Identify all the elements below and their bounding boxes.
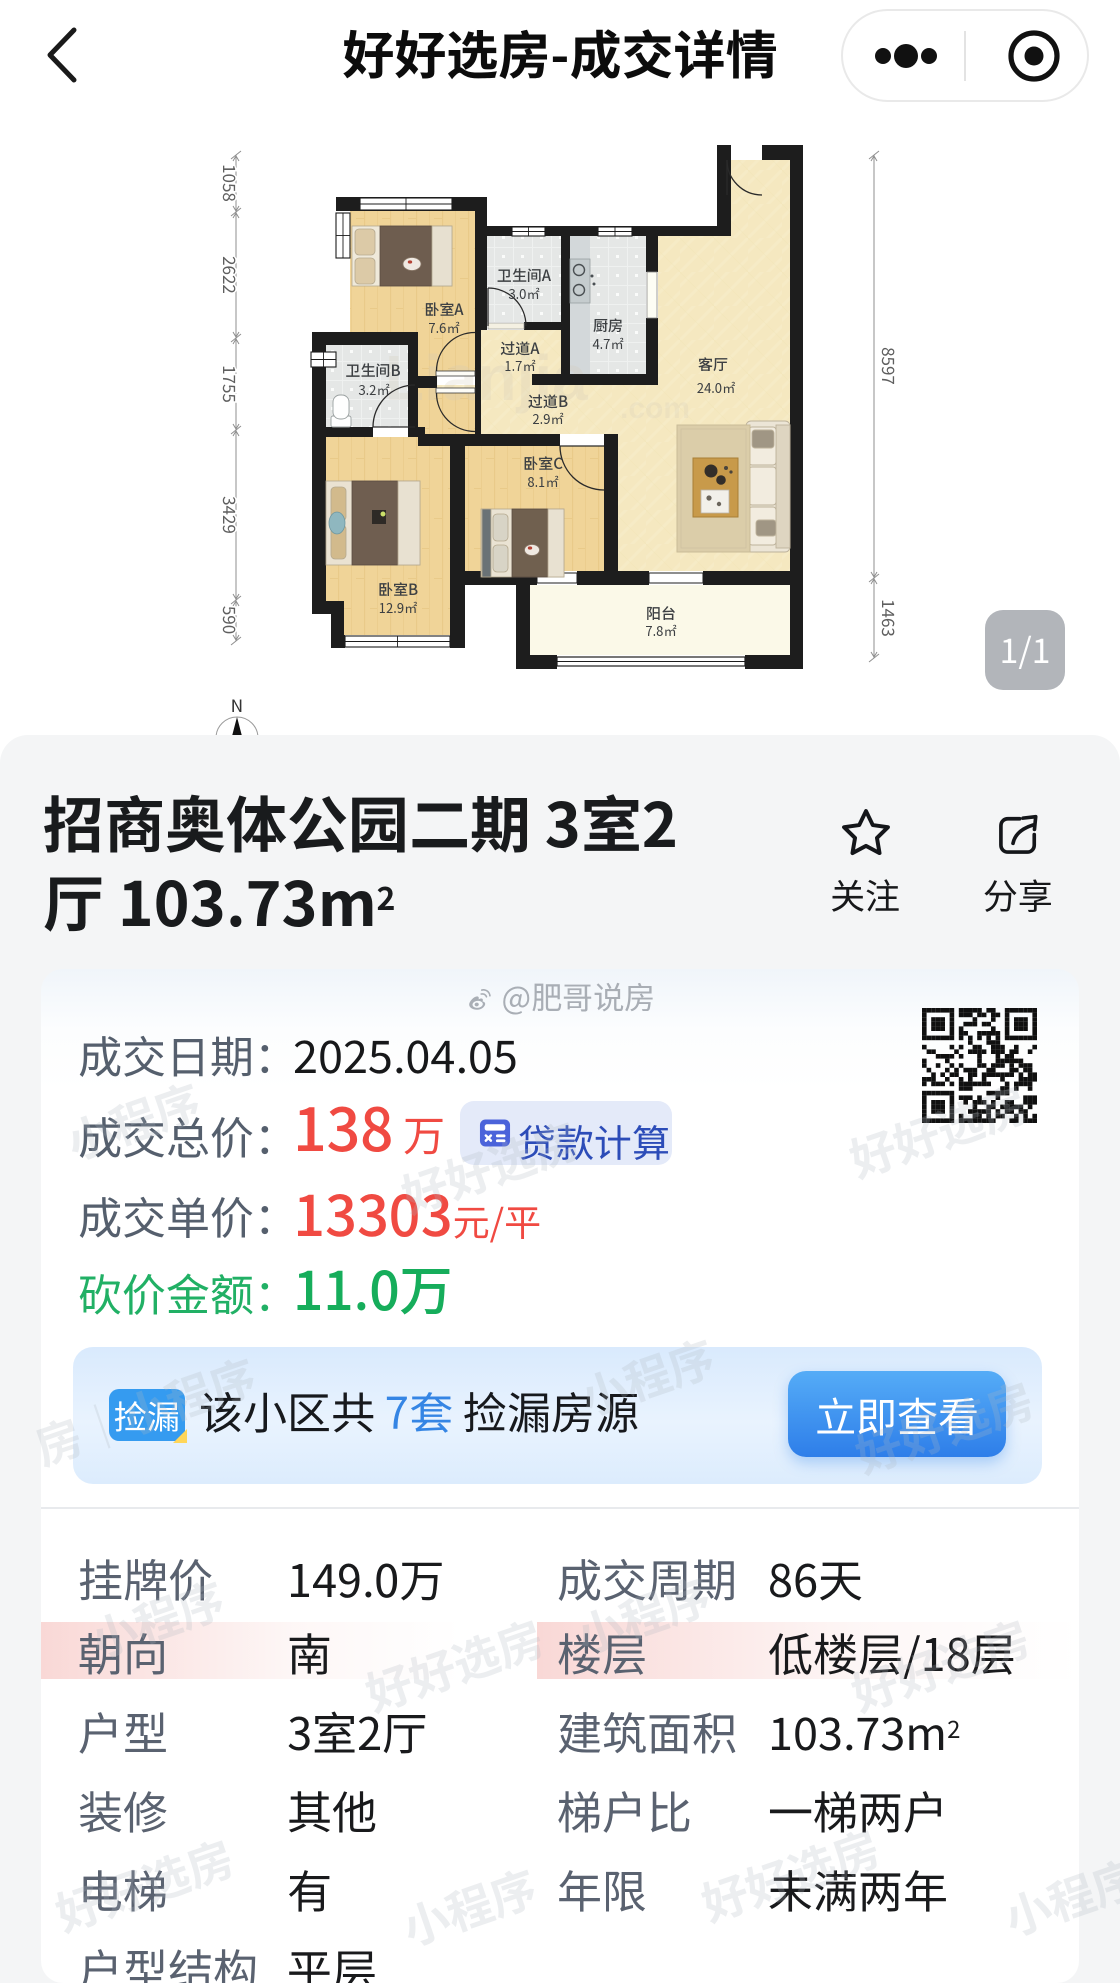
svg-text:客厅: 客厅 <box>698 354 728 375</box>
svg-text:1/1: 1/1 <box>999 624 1050 673</box>
svg-text:590: 590 <box>218 606 243 634</box>
svg-text:12.9㎡: 12.9㎡ <box>379 598 417 617</box>
svg-text:24.0㎡: 24.0㎡ <box>697 378 735 397</box>
svg-text:1.7㎡: 1.7㎡ <box>504 356 535 375</box>
svg-text:.com: .com <box>620 392 690 425</box>
svg-text:7.6㎡: 7.6㎡ <box>428 318 459 337</box>
svg-text:1463: 1463 <box>877 599 902 637</box>
svg-text:1755: 1755 <box>218 365 243 403</box>
svg-text:1058: 1058 <box>218 164 243 202</box>
svg-text:N: N <box>231 692 243 717</box>
svg-text:7.8㎡: 7.8㎡ <box>645 621 676 640</box>
svg-text:4.7㎡: 4.7㎡ <box>592 334 623 353</box>
svg-text:卧室A: 卧室A <box>424 299 464 320</box>
svg-text:3.0㎡: 3.0㎡ <box>508 284 539 303</box>
svg-text:8597: 8597 <box>877 347 902 385</box>
svg-text:卧室B: 卧室B <box>378 579 418 600</box>
svg-text:8.1㎡: 8.1㎡ <box>527 472 558 491</box>
svg-text:厨房: 厨房 <box>593 315 623 336</box>
svg-text:2.9㎡: 2.9㎡ <box>532 409 563 428</box>
svg-text:卫生间B: 卫生间B <box>345 360 400 381</box>
svg-text:3429: 3429 <box>218 496 243 534</box>
svg-text:3.2㎡: 3.2㎡ <box>358 380 389 399</box>
svg-text:2622: 2622 <box>218 256 243 294</box>
svg-text:卫生间A: 卫生间A <box>497 265 552 286</box>
svg-text:卧室C: 卧室C <box>523 453 563 474</box>
